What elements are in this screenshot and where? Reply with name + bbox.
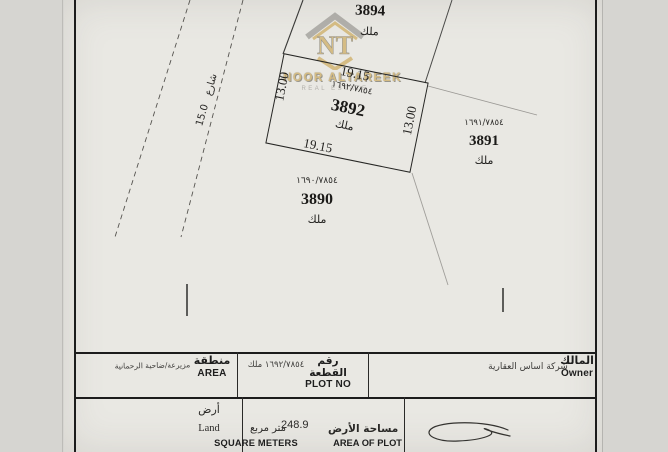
area-label-ar: منطقة	[190, 355, 234, 368]
owner-label-en: Owner	[558, 368, 596, 380]
plot-area-unit-en: SQUARE METERS	[214, 438, 298, 449]
land-type-en: Land	[178, 423, 240, 435]
land-type-cell: أرض Land	[178, 404, 240, 435]
table-row-divider	[75, 397, 596, 399]
frame-border-right	[595, 0, 597, 452]
boundary-line	[425, 0, 452, 83]
signature-scribble	[420, 419, 516, 449]
cell-divider	[404, 397, 405, 452]
plot-number: 3890	[276, 192, 358, 208]
cell-divider	[368, 352, 369, 397]
plot-parcel-3890: ١٦٩٠/٧٨٥٤ 3890 ملك	[276, 177, 358, 225]
paper-edge-line	[602, 0, 603, 452]
plot-parcel-3891: ١٦٩١/٧٨٥٤ 3891 ملك	[443, 119, 525, 166]
plot-ref-number: ١٦٩٠/٧٨٥٤	[276, 177, 358, 186]
area-value: مزيرعة/ضاحية الرحمانية	[105, 361, 200, 371]
scanned-plot-site-plan: NT NOOR ALTAREEK REAL ESTATE 19.15 ١٦٩٢/…	[0, 0, 668, 452]
plot-parcel-3894: ١٦٩٤/٧٨٥٤ 3894 ملك	[329, 0, 411, 38]
owner-label-ar: المالك	[558, 355, 596, 368]
area-label-en: AREA	[190, 368, 234, 380]
land-type-ar: أرض	[178, 404, 240, 417]
owner-value: شركة اساس العقارية	[487, 362, 569, 372]
site-plan-map: NT NOOR ALTAREEK REAL ESTATE 19.15 ١٦٩٢/…	[75, 0, 596, 352]
table-top-border	[75, 352, 596, 354]
frame-border-left	[74, 0, 76, 452]
boundary-line-faint	[428, 86, 537, 115]
plot-no-value: ١٦٩٢/٧٨٥٤ ملك	[243, 361, 309, 371]
boundary-line-faint	[412, 173, 448, 285]
cell-divider	[237, 352, 238, 397]
plot-no-label-ar: رقم القطعة	[303, 355, 353, 379]
plot-no-label: رقم القطعة PLOT NO	[303, 355, 353, 391]
plot-ref-number: ١٦٩١/٧٨٥٤	[443, 119, 525, 128]
tenure-label: ملك	[276, 214, 358, 225]
area-label: منطقة AREA	[190, 355, 234, 379]
dimension-right: 13.00	[398, 101, 421, 139]
plot-area-label-ar: مساحة الأرض	[328, 423, 402, 435]
plot-number: 3894	[330, 3, 410, 21]
owner-label: المالك Owner	[558, 355, 596, 379]
road-edge-line	[115, 0, 190, 237]
plot-number: 3891	[443, 134, 525, 149]
paper-edge-line	[62, 0, 63, 452]
road-edge-line	[181, 0, 243, 237]
plot-no-label-en: PLOT NO	[303, 379, 353, 391]
plot-area-label-en: AREA OF PLOT	[320, 438, 402, 449]
plot-area-unit-ar: متر مربع	[243, 423, 293, 435]
tenure-label: ملك	[443, 155, 525, 166]
